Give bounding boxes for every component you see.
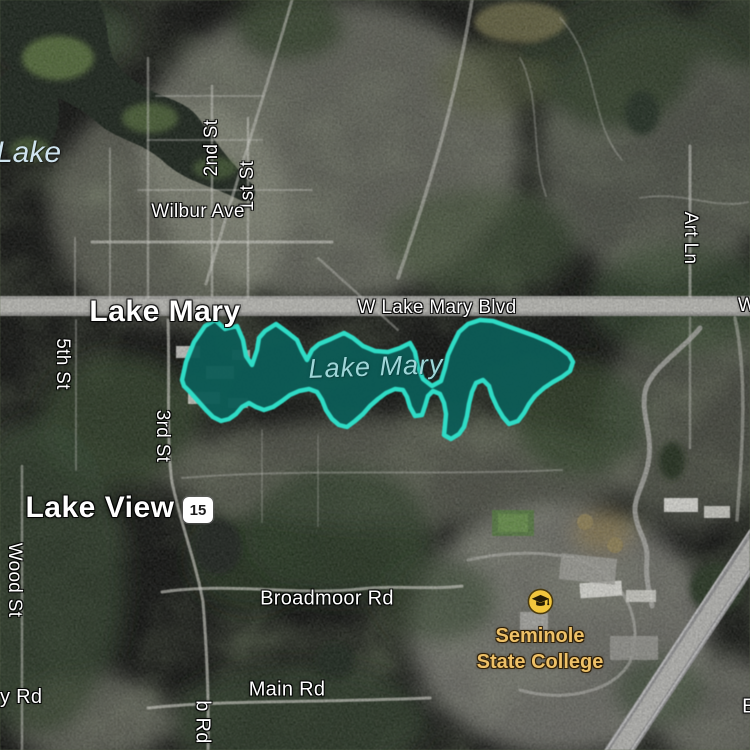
route-15-number: 15 xyxy=(190,502,207,519)
route-15-shield: 15 xyxy=(183,497,213,523)
map-canvas[interactable]: Lake 2nd St 1st St Wilbur Ave Lake Mary … xyxy=(0,0,750,750)
satellite-imagery xyxy=(0,0,750,750)
graduation-cap-icon[interactable] xyxy=(526,587,555,616)
